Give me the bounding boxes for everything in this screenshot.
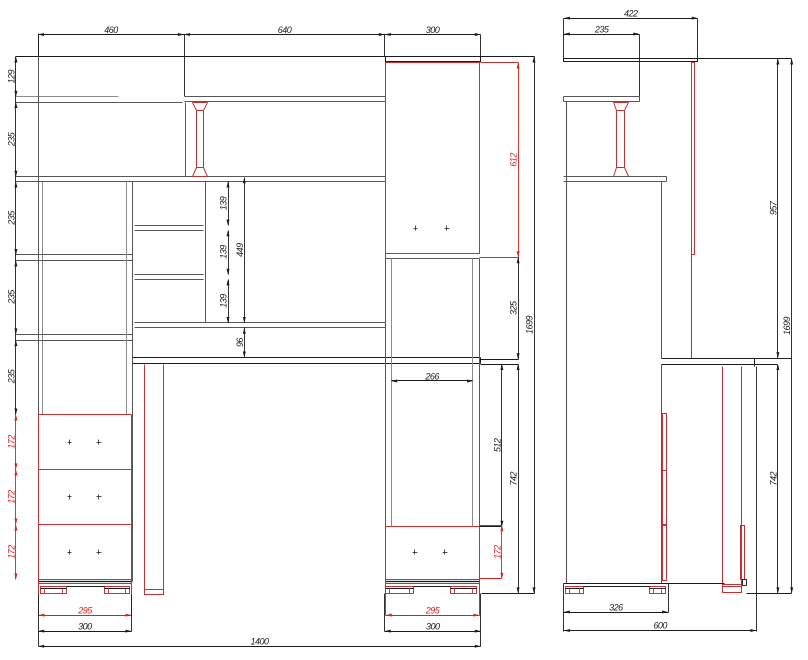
svg-text:235: 235 xyxy=(594,24,610,34)
svg-text:1699: 1699 xyxy=(525,315,535,334)
svg-text:172: 172 xyxy=(6,435,16,449)
svg-text:422: 422 xyxy=(624,8,638,18)
svg-text:235: 235 xyxy=(6,210,16,226)
svg-text:235: 235 xyxy=(6,289,16,305)
svg-text:96: 96 xyxy=(235,338,245,348)
svg-text:139: 139 xyxy=(219,245,229,259)
svg-text:266: 266 xyxy=(424,371,439,381)
svg-text:1400: 1400 xyxy=(250,637,269,647)
svg-text:600: 600 xyxy=(653,621,667,631)
svg-text:957: 957 xyxy=(768,200,778,215)
svg-text:640: 640 xyxy=(278,25,292,35)
svg-text:129: 129 xyxy=(6,69,16,83)
svg-text:326: 326 xyxy=(609,602,623,612)
svg-text:449: 449 xyxy=(235,243,245,257)
svg-text:612: 612 xyxy=(509,153,519,167)
svg-text:139: 139 xyxy=(219,294,229,308)
svg-text:300: 300 xyxy=(426,621,440,631)
svg-text:742: 742 xyxy=(509,471,519,485)
svg-text:1699: 1699 xyxy=(782,316,792,335)
svg-text:295: 295 xyxy=(77,605,93,615)
svg-text:172: 172 xyxy=(492,545,502,559)
svg-text:295: 295 xyxy=(425,605,441,615)
svg-text:460: 460 xyxy=(104,25,118,35)
svg-text:325: 325 xyxy=(509,300,519,315)
svg-text:742: 742 xyxy=(768,471,778,485)
svg-text:235: 235 xyxy=(6,368,16,384)
svg-text:172: 172 xyxy=(6,490,16,504)
svg-text:512: 512 xyxy=(492,438,502,452)
svg-text:300: 300 xyxy=(78,621,92,631)
svg-text:235: 235 xyxy=(6,131,16,147)
svg-text:139: 139 xyxy=(219,196,229,210)
svg-text:300: 300 xyxy=(426,25,440,35)
svg-text:172: 172 xyxy=(6,545,16,559)
